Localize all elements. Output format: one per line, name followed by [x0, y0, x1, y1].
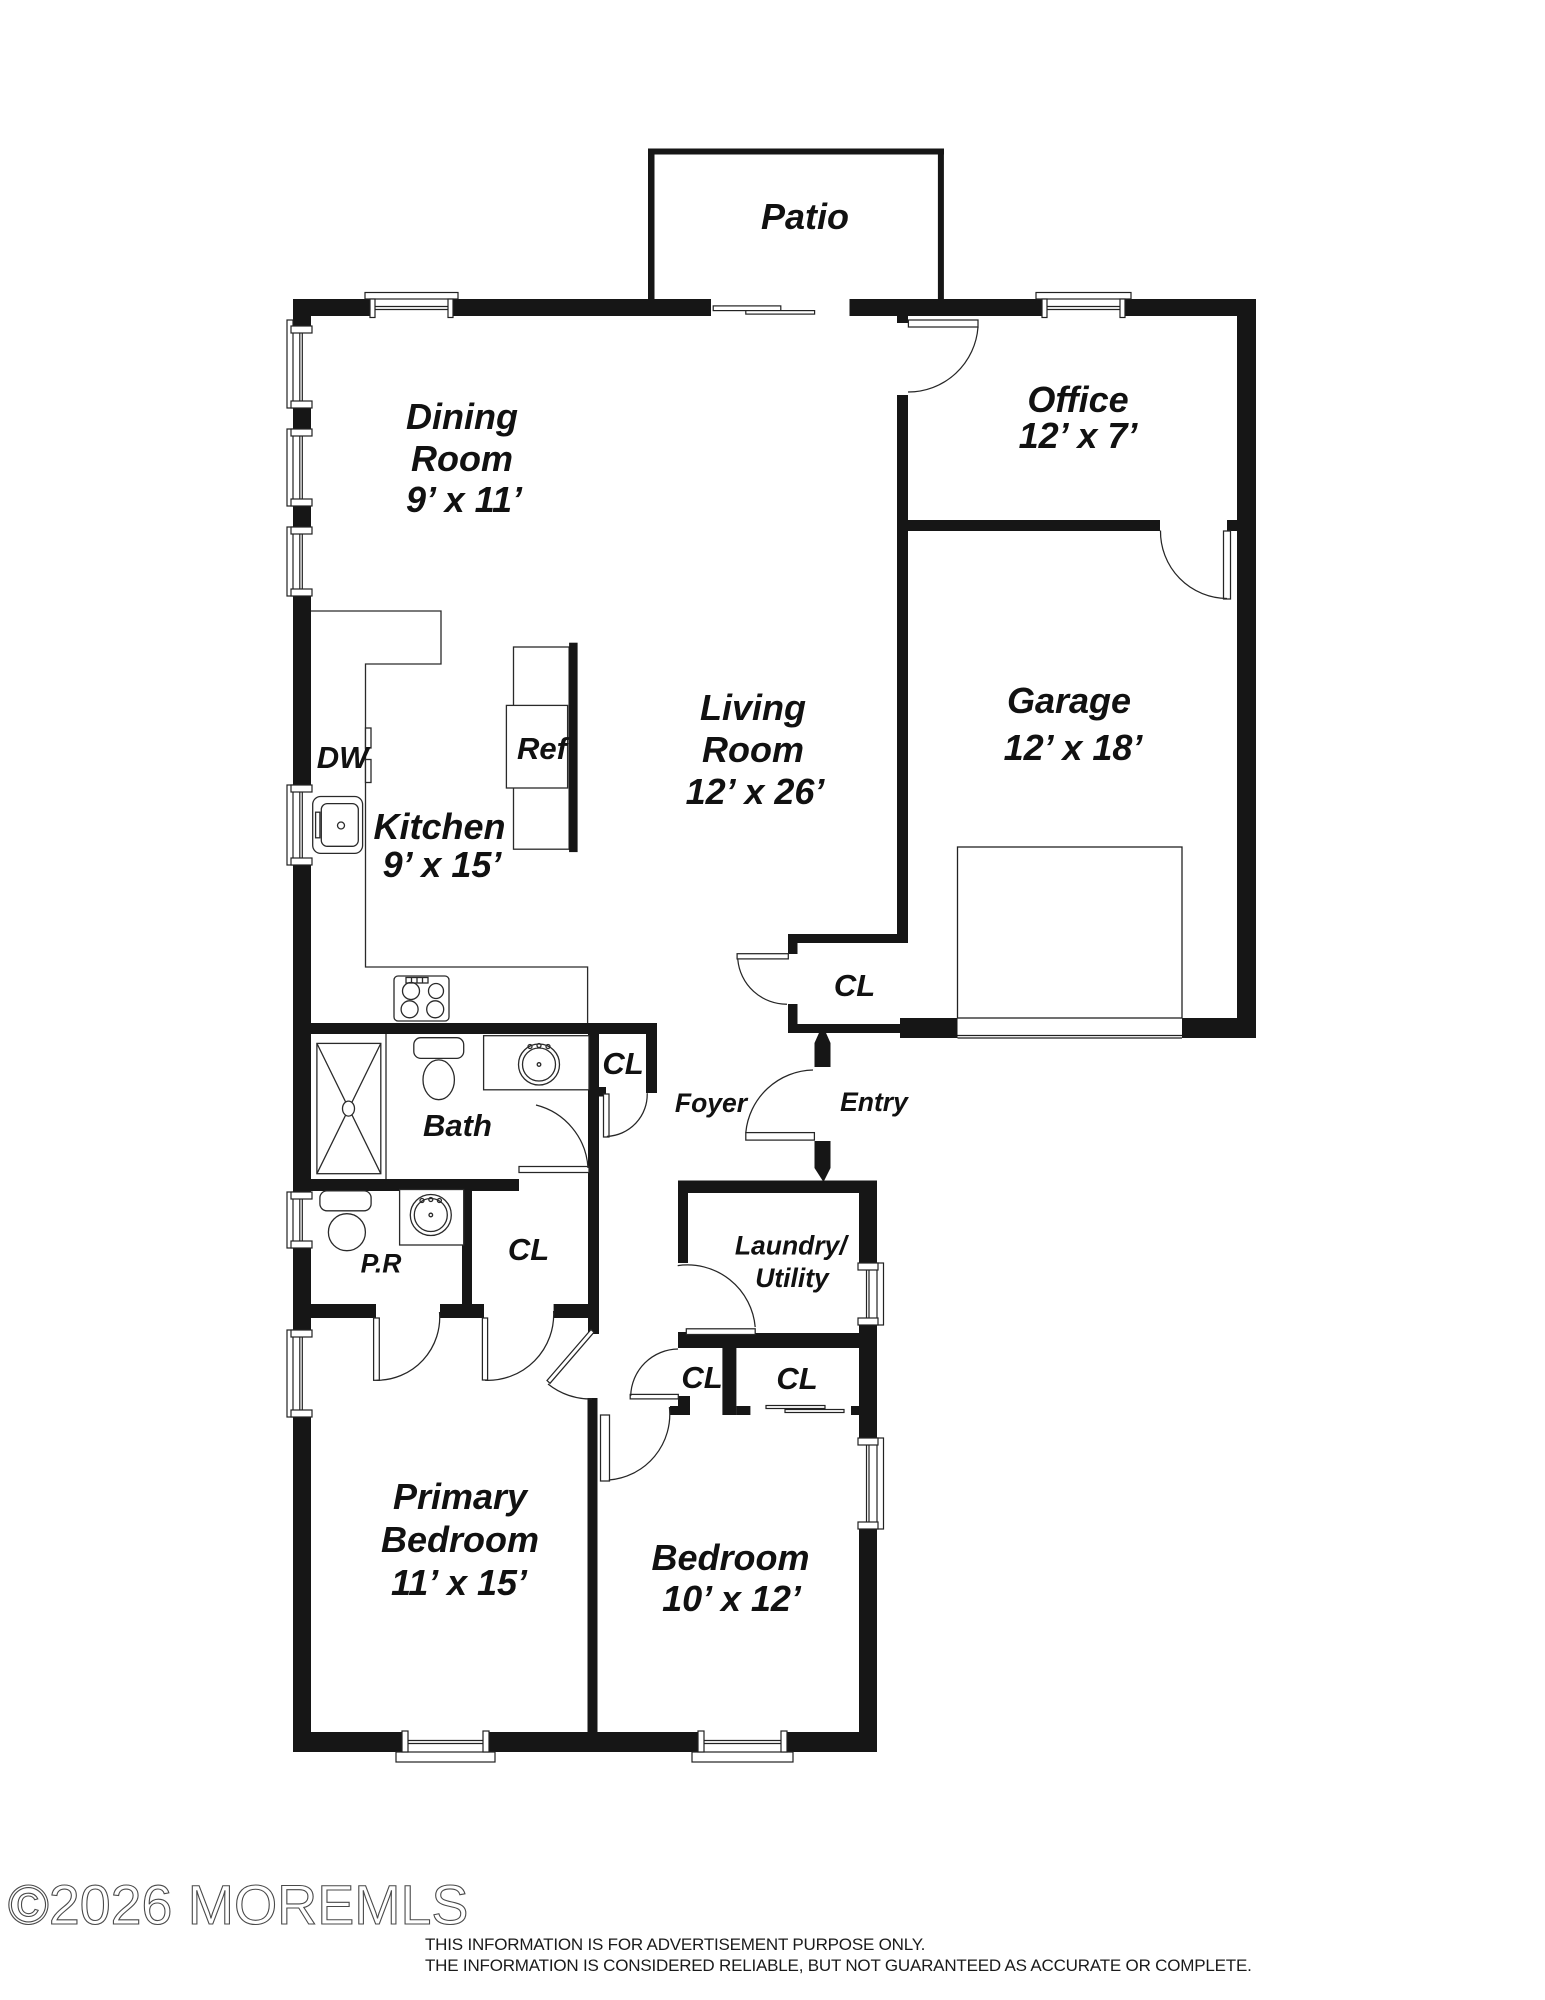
- svg-text:CL: CL: [681, 1360, 722, 1395]
- svg-text:Utility: Utility: [755, 1263, 830, 1293]
- svg-text:CL: CL: [508, 1232, 549, 1267]
- svg-text:Primary: Primary: [393, 1476, 529, 1517]
- svg-text:Ref: Ref: [517, 731, 570, 766]
- svg-text:Room: Room: [411, 438, 513, 479]
- svg-text:Room: Room: [702, 729, 804, 770]
- svg-text:Laundry/: Laundry/: [735, 1231, 850, 1261]
- svg-text:9’ x 15’: 9’ x 15’: [383, 844, 503, 885]
- svg-text:Kitchen: Kitchen: [373, 806, 505, 847]
- svg-text:Garage: Garage: [1007, 680, 1131, 721]
- svg-text:CL: CL: [834, 968, 875, 1003]
- svg-text:10’ x 12’: 10’ x 12’: [662, 1578, 802, 1619]
- svg-text:Foyer: Foyer: [675, 1088, 749, 1118]
- svg-text:12’ x 18’: 12’ x 18’: [1004, 727, 1144, 768]
- svg-text:DW: DW: [317, 740, 371, 775]
- svg-text:Bedroom: Bedroom: [651, 1537, 809, 1578]
- svg-text:Bath: Bath: [423, 1108, 492, 1143]
- svg-text:CL: CL: [602, 1046, 643, 1081]
- svg-text:Entry: Entry: [840, 1087, 909, 1117]
- svg-text:Bedroom: Bedroom: [381, 1519, 539, 1560]
- svg-text:Patio: Patio: [761, 196, 849, 237]
- svg-text:11’ x 15’: 11’ x 15’: [391, 1562, 528, 1603]
- svg-text:P.R: P.R: [361, 1249, 402, 1279]
- svg-text:THIS INFORMATION IS FOR ADVERT: THIS INFORMATION IS FOR ADVERTISEMENT PU…: [425, 1935, 925, 1954]
- svg-text:12’ x 26’: 12’ x 26’: [686, 771, 826, 812]
- svg-text:Living: Living: [700, 687, 806, 728]
- svg-text:Dining: Dining: [406, 396, 518, 437]
- svg-text:©2026 MOREMLS: ©2026 MOREMLS: [8, 1874, 468, 1936]
- svg-text:CL: CL: [776, 1361, 817, 1396]
- svg-text:Office: Office: [1027, 379, 1128, 420]
- svg-text:THE INFORMATION IS CONSIDERED: THE INFORMATION IS CONSIDERED RELIABLE, …: [425, 1956, 1252, 1975]
- svg-text:9’ x 11’: 9’ x 11’: [406, 479, 523, 520]
- svg-text:12’ x 7’: 12’ x 7’: [1019, 415, 1139, 456]
